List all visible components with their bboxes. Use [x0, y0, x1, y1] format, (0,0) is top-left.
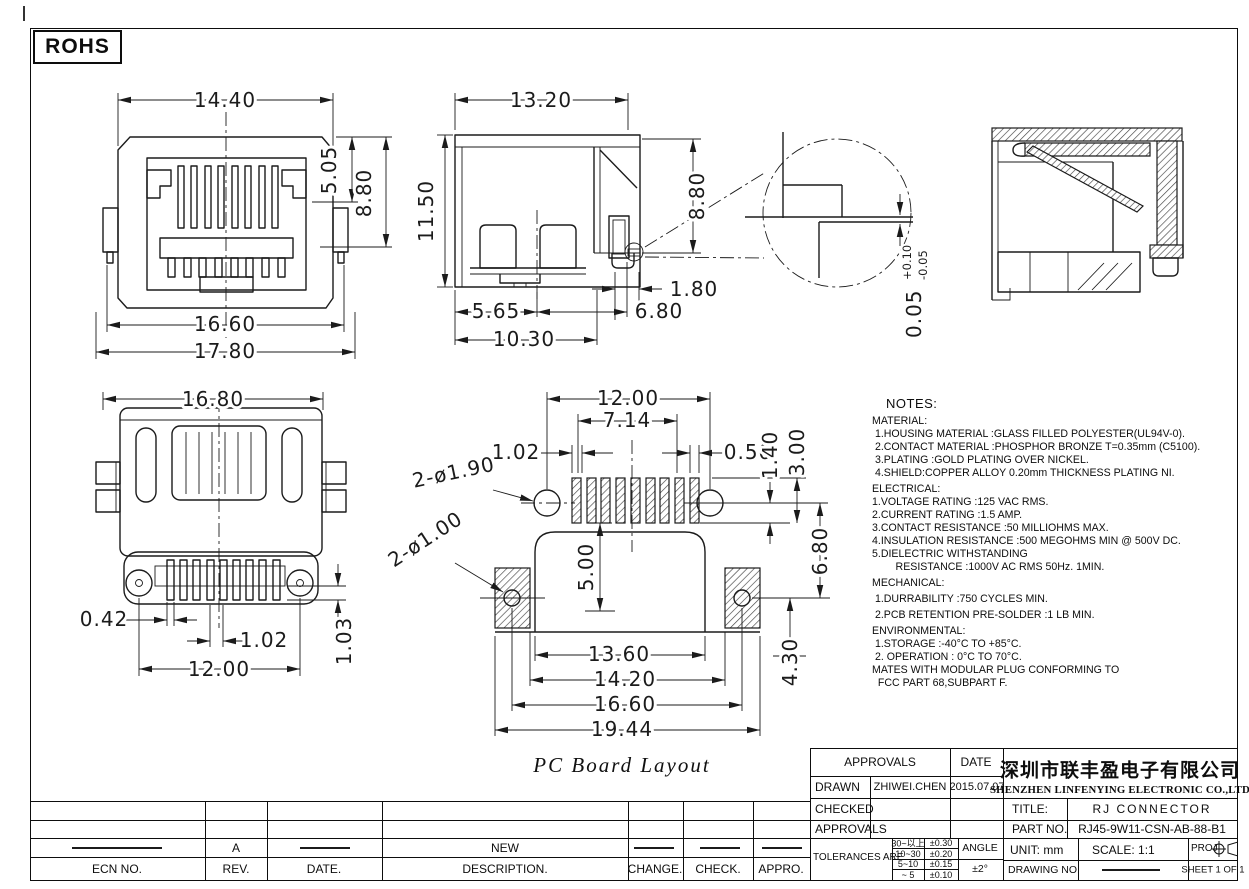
sheet-label: SHEET 1 OF 1	[1181, 865, 1244, 876]
company-name-cn: 深圳市联丰盈电子有限公司	[1000, 756, 1240, 783]
approvals-label: APPROVALS	[815, 822, 887, 836]
dim-label: 12.00	[188, 657, 250, 681]
note-line: 1.HOUSING MATERIAL :GLASS FILLED POLYEST…	[872, 428, 1240, 441]
dim-label: 7.14	[603, 408, 652, 432]
notes-title: NOTES:	[886, 396, 1240, 411]
dim-label: 6.80	[808, 527, 832, 576]
tolerance-value: ±0.20	[930, 849, 952, 859]
col-header-change: CHANGE.	[628, 862, 683, 876]
angle-label: ANGLE	[962, 842, 998, 854]
dim-label: 8.80	[352, 169, 376, 218]
note-line: MATES WITH MODULAR PLUG CONFORMING TO	[872, 664, 1240, 677]
note-line: 1.STORAGE :-40°C TO +85°C.	[872, 638, 1240, 651]
drawing-no-label: DRAWING NO.	[1008, 864, 1080, 876]
note-line: 1.DURRABILITY :750 CYCLES MIN.	[872, 593, 1240, 606]
pcb-layout-caption: PC Board Layout	[532, 753, 710, 777]
dim-label: 8.80	[685, 172, 709, 221]
bottom-view: 16.80 0.42 1.02 12.00 1.03	[80, 387, 356, 681]
date-header: DATE	[960, 755, 991, 769]
note-line: 4.SHIELD:COPPER ALLOY 0.20mm THICKNESS P…	[872, 467, 1240, 480]
note-line: ELECTRICAL:	[872, 483, 1240, 496]
dim-label: 0.05	[902, 289, 926, 338]
notes-block: NOTES: MATERIAL: 1.HOUSING MATERIAL :GLA…	[872, 396, 1240, 690]
note-line: 2.CONTACT MATERIAL :PHOSPHOR BRONZE T=0.…	[872, 441, 1240, 454]
dim-label: 3.00	[785, 428, 809, 477]
dim-label: 16.60	[194, 312, 256, 336]
note-line: 2. OPERATION : 0°C TO 70°C.	[872, 651, 1240, 664]
note-line: 2.CURRENT RATING :1.5 AMP.	[872, 509, 1240, 522]
tolerance-value: ±0.30	[930, 838, 952, 848]
side-view: 13.20 11.50 8.80 1.80 5.65 6.80 10.30	[414, 88, 766, 351]
dim-tolerance: +0.10	[900, 245, 914, 280]
blank-entry	[700, 847, 740, 849]
note-line: FCC PART 68,SUBPART F.	[872, 677, 1240, 690]
col-header-ecn: ECN NO.	[92, 862, 142, 876]
note-line: MECHANICAL:	[872, 577, 1240, 590]
dim-label: 10.30	[493, 327, 555, 351]
col-header-date: DATE.	[307, 862, 341, 876]
company-name-en: SHENZHEN LINFENYING ELECTRONIC CO.,LTD	[990, 784, 1249, 796]
revision-description: NEW	[491, 841, 519, 855]
revision-rev: A	[232, 841, 240, 855]
dim-label: 5.00	[574, 543, 598, 592]
dim-label: 19.44	[591, 717, 653, 741]
dim-label: 12.00	[597, 386, 659, 410]
drawing-no-blank	[1102, 869, 1160, 871]
note-line: 3.PLATING :GOLD PLATING OVER NICKEL.	[872, 454, 1240, 467]
col-header-appro: APPRO.	[758, 862, 803, 876]
title-value: RJ CONNECTOR	[1092, 802, 1211, 816]
note-line: 5.DIELECTRIC WITHSTANDING	[872, 548, 1240, 561]
part-no-label: PART NO.	[1012, 822, 1067, 836]
dim-label: 11.50	[414, 180, 438, 242]
hole-callout: 2-ø1.90	[410, 452, 497, 493]
front-view: 14.40 5.05 8.80 16.60 17.80	[96, 88, 392, 363]
dim-label: 5.05	[317, 146, 341, 195]
checked-label: CHECKED	[815, 802, 874, 816]
hole-callout: 2-ø1.00	[384, 506, 467, 572]
blank-entry	[762, 847, 802, 849]
dim-label: 1.80	[670, 277, 719, 301]
blank-entry	[300, 847, 350, 849]
blank-entry	[634, 847, 674, 849]
dim-label: 14.40	[194, 88, 256, 112]
dim-label: 13.20	[510, 88, 572, 112]
dim-label: 1.03	[332, 617, 356, 666]
dim-label: 1.02	[240, 628, 289, 652]
blank-entry	[72, 847, 162, 849]
note-line: ENVIRONMENTAL:	[872, 625, 1240, 638]
title-label: TITLE:	[1012, 802, 1048, 816]
tolerance-range: ~ 5	[902, 870, 915, 880]
part-no-value: RJ45-9W11-CSN-AB-88-B1	[1078, 822, 1226, 836]
note-line: 1.VOLTAGE RATING :125 VAC RMS.	[872, 496, 1240, 509]
tolerance-value: ±0.15	[930, 859, 952, 869]
unit-label: UNIT: mm	[1010, 843, 1063, 857]
tolerance-range: 10~30	[895, 849, 920, 859]
dim-label: 0.42	[80, 607, 129, 631]
tolerance-range: 5~10	[898, 859, 918, 869]
dim-label: 16.60	[594, 692, 656, 716]
col-header-check: CHECK.	[695, 862, 740, 876]
section-view	[992, 128, 1183, 300]
scale-label: SCALE: 1:1	[1092, 843, 1155, 857]
dim-label: 1.02	[492, 440, 541, 464]
angle-tolerance: ±2°	[972, 863, 988, 875]
note-line: RESISTANCE :1000V AC RMS 50Hz. 1MIN.	[872, 561, 1240, 574]
dim-label: 4.30	[778, 638, 802, 687]
drawing-sheet: ROHS	[0, 0, 1249, 889]
dim-label: 6.80	[635, 299, 684, 323]
dim-label: 14.20	[594, 667, 656, 691]
dim-label: 16.80	[182, 387, 244, 411]
dim-label: 1.40	[758, 431, 782, 480]
third-angle-projection-icon	[1212, 841, 1238, 857]
col-header-description: DESCRIPTION.	[462, 862, 547, 876]
note-line: 2.PCB RETENTION PRE-SOLDER :1 LB MIN.	[872, 609, 1240, 622]
approvals-header: APPROVALS	[844, 755, 916, 769]
pcb-layout-view: 12.00 7.14 1.02 0.50 1.40 3.00 6.80 5.00…	[384, 386, 832, 777]
dim-label: 17.80	[194, 339, 256, 363]
drawn-label: DRAWN	[815, 780, 860, 794]
tolerance-value: ±0.10	[930, 870, 952, 880]
drawn-name: ZHIWEI.CHEN	[874, 781, 947, 793]
note-line: MATERIAL:	[872, 415, 1240, 428]
dim-label: 13.60	[588, 642, 650, 666]
tolerances-label: TOLERANCES ARE	[813, 852, 903, 863]
col-header-rev: REV.	[223, 862, 250, 876]
note-line: 4.INSULATION RESISTANCE :500 MEGOHMS MIN…	[872, 535, 1240, 548]
detail-view: 0.05 +0.10 -0.05	[745, 132, 930, 338]
dim-label: 5.65	[472, 299, 521, 323]
dim-tolerance: -0.05	[916, 250, 930, 280]
note-line: 3.CONTACT RESISTANCE :50 MILLIOHMS MAX.	[872, 522, 1240, 535]
